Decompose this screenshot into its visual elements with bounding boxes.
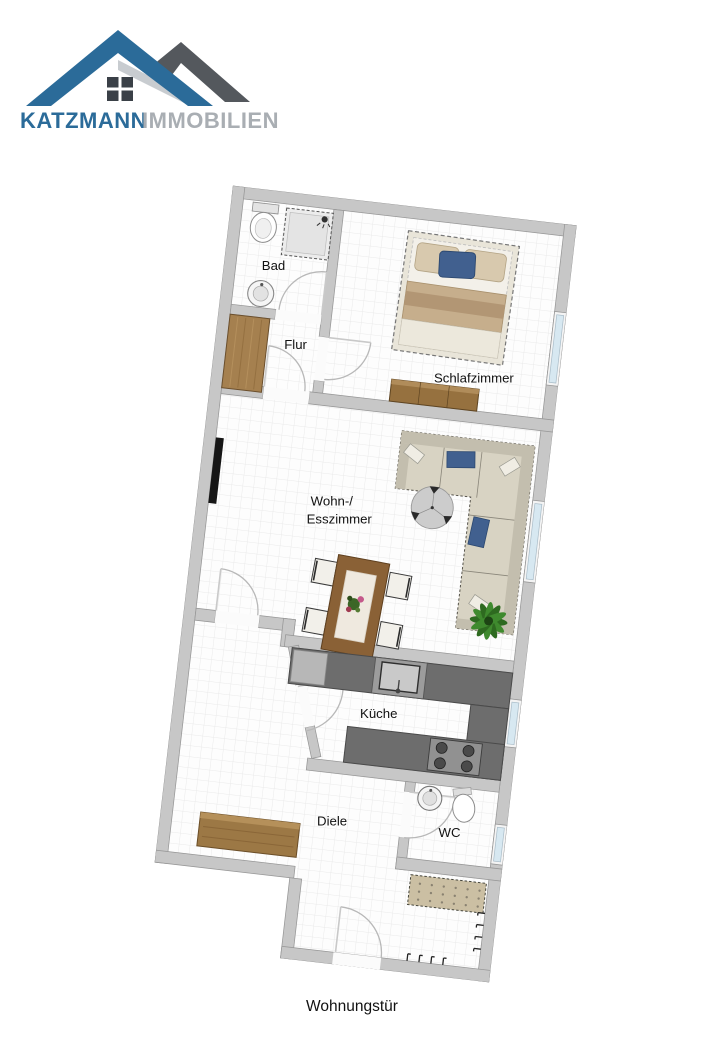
logo-suffix-text: IMMOBILIEN [142, 108, 279, 133]
company-logo: KATZMANN IMMOBILIEN [18, 22, 288, 144]
kitchen-sink [372, 657, 428, 699]
double-bed [392, 231, 520, 366]
wardrobe [222, 314, 270, 392]
house-window-icon [107, 77, 133, 101]
stove [427, 738, 482, 776]
label-diele: Diele [317, 813, 347, 828]
label-flur: Flur [284, 337, 307, 352]
label-wc: WC [439, 825, 461, 840]
label-bad: Bad [262, 258, 285, 273]
label-wohnzimmer-line2: Esszimmer [307, 511, 373, 526]
label-schlafzimmer: Schlafzimmer [434, 371, 514, 386]
logo-graphic: KATZMANN IMMOBILIEN [18, 22, 288, 144]
label-wohnzimmer-line1: Wohn-/ [311, 494, 354, 509]
floorplan: Bad Flur Schlafzimmer Wohn-/ Esszimmer K… [145, 186, 576, 983]
sofa-cushion-blue [447, 452, 475, 468]
dishwasher [290, 650, 327, 686]
floorplan-drawing: Bad Flur Schlafzimmer Wohn-/ Esszimmer K… [145, 186, 576, 983]
dining-chair [386, 572, 412, 600]
label-kueche: Küche [360, 706, 397, 721]
floorplan-page: { "logo": { "brand": "KATZMANN", "suffix… [0, 0, 720, 1040]
shower [281, 208, 333, 260]
entry-door-label: Wohnungstür [262, 998, 442, 1016]
dining-chair [377, 621, 403, 649]
logo-brand-text: KATZMANN [20, 108, 147, 133]
